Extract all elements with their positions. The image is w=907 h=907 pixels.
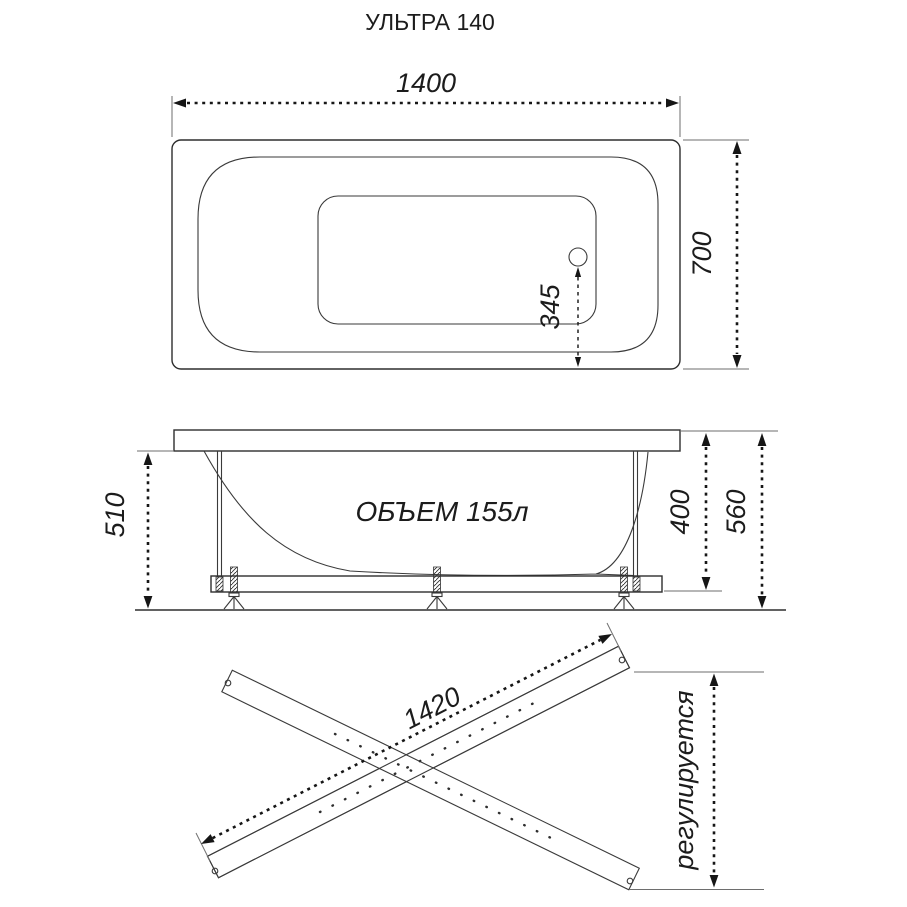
drawing-page: УЛЬТРА 140 1400 700 xyxy=(0,0,907,907)
side-view: ОБЪЕМ 155л 510 400 560 xyxy=(100,430,786,610)
arrowhead-top xyxy=(710,674,719,687)
arrowhead-top xyxy=(575,267,581,277)
arrowhead-left xyxy=(201,834,215,844)
arrowhead-bottom xyxy=(758,596,767,609)
arrowhead-bottom xyxy=(733,355,742,368)
adjustable-foot-left xyxy=(224,567,244,609)
foot-nut xyxy=(229,593,239,597)
arrowhead-top xyxy=(702,433,711,446)
rim-profile xyxy=(174,430,680,451)
volume-label: ОБЪЕМ 155л xyxy=(356,496,529,527)
arrowhead-bottom xyxy=(710,875,719,888)
dim-label-length: 1400 xyxy=(396,68,456,98)
adjustable-foot-right xyxy=(614,567,634,609)
drawing-title: УЛЬТРА 140 xyxy=(365,9,495,35)
drain-icon xyxy=(569,248,587,266)
tub-outer-rim xyxy=(172,140,680,369)
dim-height-560: 560 xyxy=(721,433,766,609)
dim-label-adjustable: регулируется xyxy=(669,690,699,870)
arrowhead-top xyxy=(733,141,742,154)
dim-label-510: 510 xyxy=(100,492,130,537)
top-view: 1400 700 345 xyxy=(172,68,749,369)
arrowhead-right xyxy=(598,634,612,644)
dim-adjustable: регулируется xyxy=(629,672,764,890)
foot-tripod xyxy=(614,597,634,610)
foot-nut xyxy=(619,593,629,597)
leg-anchor-right xyxy=(633,577,640,591)
arrowhead-bottom xyxy=(702,577,711,590)
bottom-view: 1420 регулируется xyxy=(196,623,764,890)
dim-label-560: 560 xyxy=(721,489,751,534)
screw-rod xyxy=(621,567,628,593)
dim-length-1400: 1400 xyxy=(172,68,680,137)
dim-label-drain-offset: 345 xyxy=(535,283,565,329)
arrowhead-left xyxy=(173,99,186,108)
arrowhead-right xyxy=(666,99,679,108)
leg-anchor-left xyxy=(216,577,223,591)
screw-rod xyxy=(231,567,238,593)
arrowhead-bottom xyxy=(575,357,581,367)
arrowhead-bottom xyxy=(144,596,153,609)
dim-label-width: 700 xyxy=(687,231,717,276)
dim-rail-length-1420: 1420 xyxy=(196,623,621,861)
arrowhead-top xyxy=(144,453,153,466)
technical-drawing: УЛЬТРА 140 1400 700 xyxy=(0,0,907,907)
tub-inner-rim xyxy=(198,157,658,352)
dimension-line xyxy=(213,640,601,838)
adjustable-foot-center xyxy=(427,567,447,609)
arrowhead-top xyxy=(758,433,767,446)
screw-rod xyxy=(434,567,441,593)
foot-tripod xyxy=(427,597,447,610)
foot-nut xyxy=(432,593,442,597)
dim-height-400: 400 xyxy=(665,433,710,590)
dim-label-400: 400 xyxy=(665,489,695,534)
dim-height-510: 510 xyxy=(100,453,152,609)
dim-width-700: 700 xyxy=(683,140,749,369)
foot-tripod xyxy=(224,597,244,610)
